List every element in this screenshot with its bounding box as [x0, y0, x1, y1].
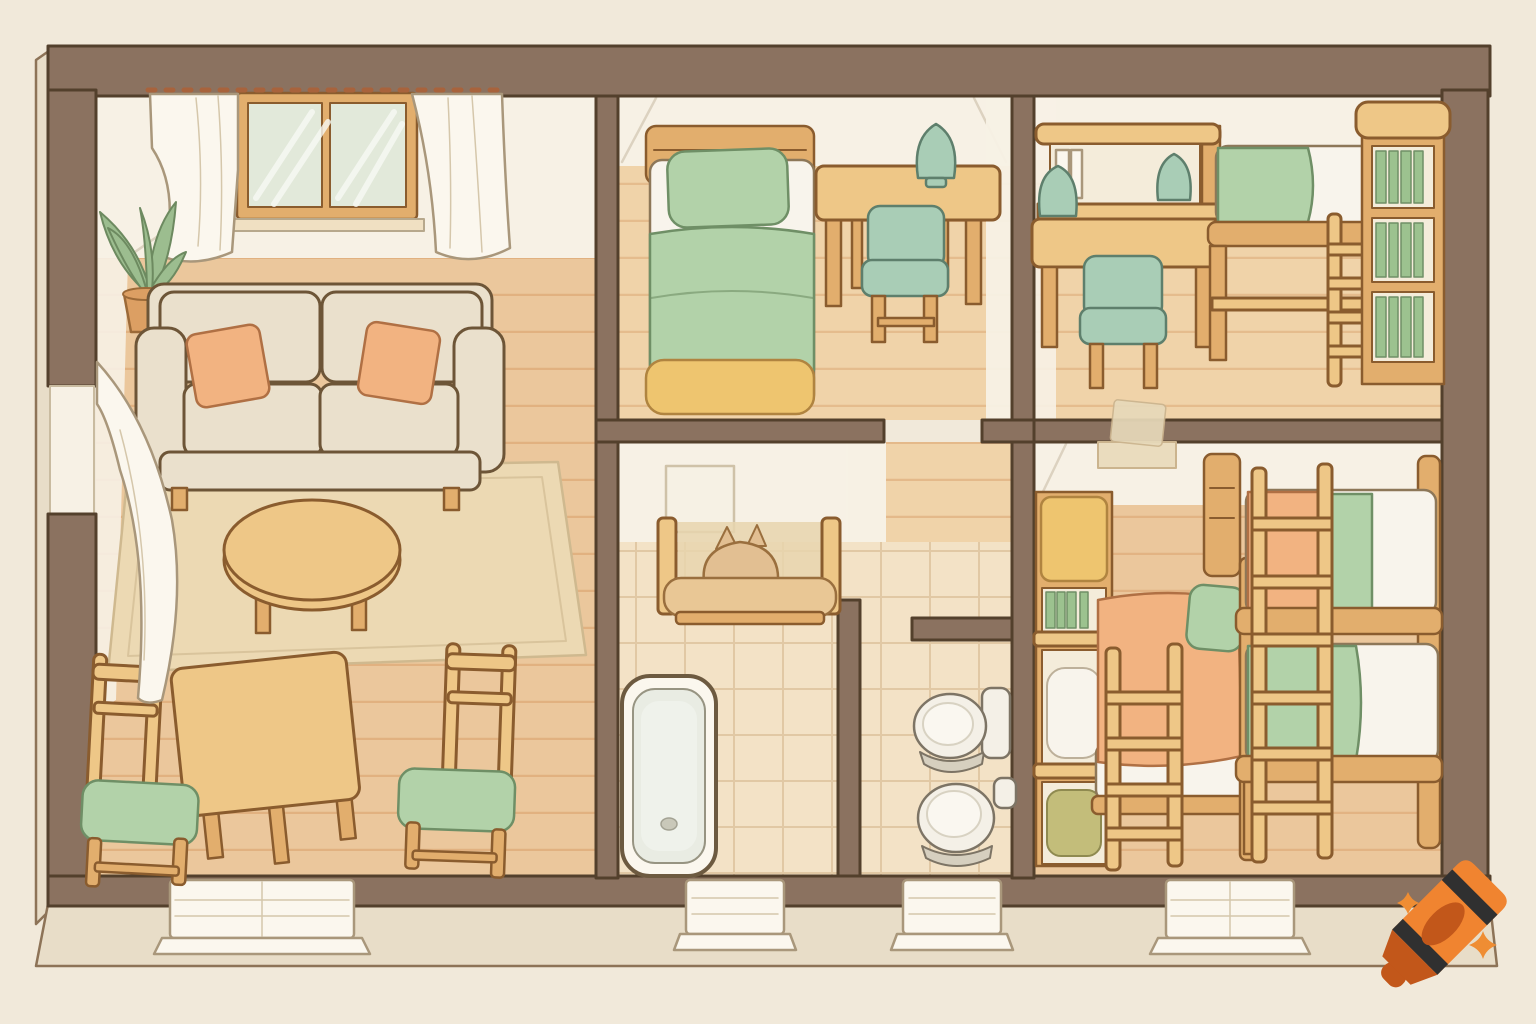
bed-blanket	[650, 227, 814, 377]
drain	[661, 818, 677, 830]
throw-pillow	[357, 321, 442, 406]
window	[230, 93, 424, 231]
single-bed	[646, 126, 814, 414]
green-books	[1046, 592, 1088, 628]
white-pillow	[1047, 668, 1101, 758]
study-kids-divider-wall	[1034, 420, 1442, 442]
door-sill	[891, 880, 1013, 950]
living-divider-wall	[596, 96, 618, 878]
door-sill	[674, 880, 796, 950]
footboard	[646, 360, 814, 414]
headboard	[1204, 454, 1240, 576]
toilet-west-wall	[838, 600, 860, 876]
desk-chair	[862, 206, 948, 342]
bench-with-cat	[658, 518, 840, 624]
left-wall-upper	[48, 90, 96, 386]
toilet-north-wall	[912, 618, 1012, 640]
right-wall	[1442, 90, 1488, 880]
sofa-leg	[444, 488, 459, 510]
door-sill	[154, 880, 370, 954]
floor-plan-illustration: Hand-drawn isometric floor plan of a sma…	[0, 0, 1536, 1024]
middle-divider-wall	[1012, 96, 1034, 878]
sofa-leg	[172, 488, 187, 510]
bookshelf	[1356, 102, 1450, 384]
bed-pillow	[667, 148, 790, 228]
bedroom-south-wall-stub	[982, 420, 1034, 442]
bedroom-south-wall	[596, 420, 884, 442]
bathtub	[622, 676, 716, 876]
throw-pillow	[185, 323, 271, 409]
door-sill	[1150, 880, 1310, 954]
sofa	[136, 284, 504, 510]
left-wall-window	[50, 386, 94, 514]
